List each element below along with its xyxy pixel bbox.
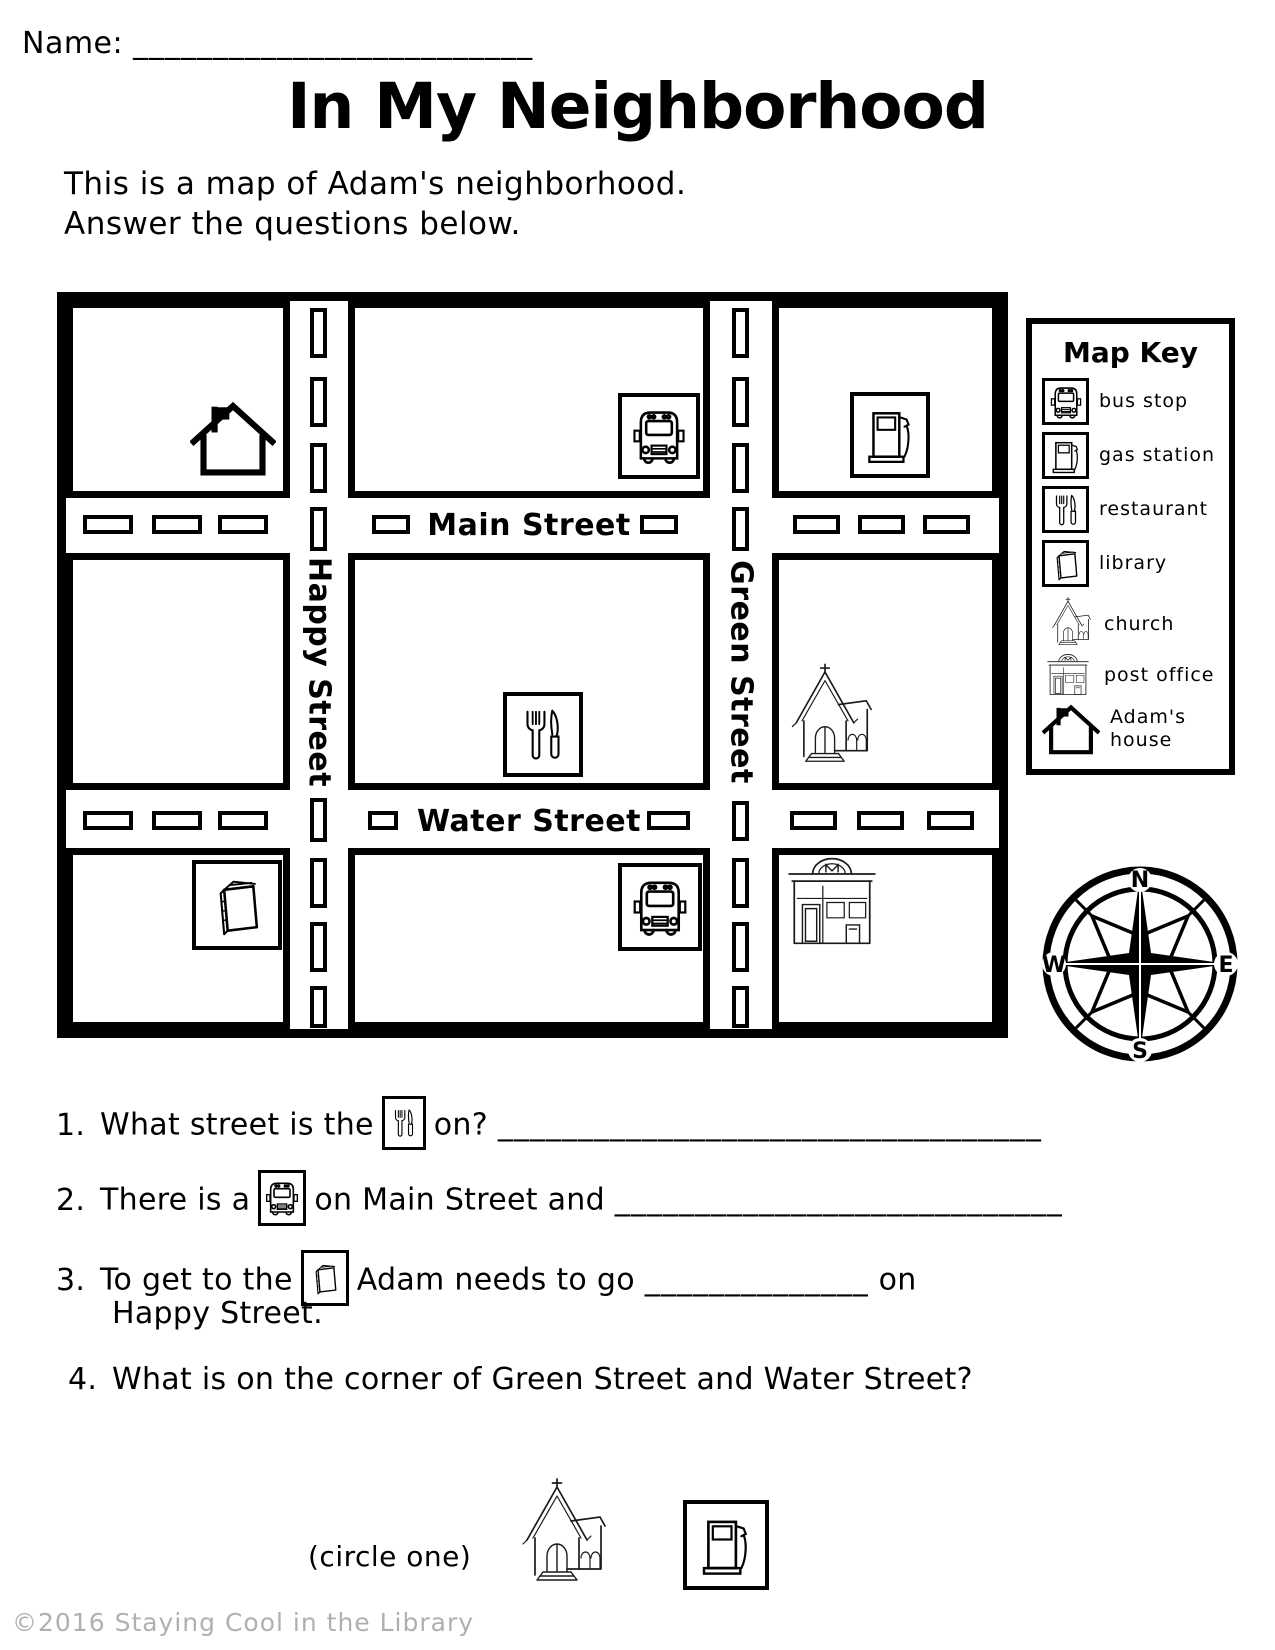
church-icon xyxy=(1042,596,1094,652)
road-dash xyxy=(732,922,749,972)
road-dash xyxy=(218,811,268,830)
water-street-label: Water Street xyxy=(348,804,710,839)
road-dash xyxy=(790,811,837,830)
page-title: In My Neighborhood xyxy=(0,70,1275,143)
map-key: Map Key bus stop gas station restaurant … xyxy=(1026,318,1235,775)
road-dash xyxy=(923,515,970,534)
instructions-line1: This is a map of Adam's neighborhood. xyxy=(64,164,686,204)
key-item-adams-house: Adam's house xyxy=(1042,700,1200,758)
key-item-restaurant: restaurant xyxy=(1042,486,1208,533)
road-dash xyxy=(732,507,749,551)
question-4: 4.What is on the corner of Green Street … xyxy=(68,1362,973,1397)
road-dash xyxy=(152,811,202,830)
road-dash xyxy=(152,515,202,534)
question-number: 4. xyxy=(68,1362,112,1397)
question-text: on Main Street and xyxy=(314,1183,605,1218)
question-1: 1.What street is the on? _______________… xyxy=(56,1096,1042,1156)
bus-icon xyxy=(1042,378,1089,425)
answer-blank[interactable]: __________________________________ xyxy=(498,1108,1042,1143)
map-key-title: Map Key xyxy=(1032,336,1229,369)
happy-street-label: Happy Street xyxy=(302,557,337,787)
key-item-bus-stop: bus stop xyxy=(1042,378,1188,425)
road-dash xyxy=(83,515,133,534)
neighborhood-map: Main Street Water Street Happy Street Gr… xyxy=(57,292,1008,1038)
gas-station-icon xyxy=(850,392,930,478)
road-dash xyxy=(857,811,904,830)
restaurant-icon xyxy=(382,1096,426,1150)
key-label: post office xyxy=(1104,664,1215,687)
road-dash xyxy=(310,858,327,908)
road-dash xyxy=(310,798,327,842)
road-dash xyxy=(732,377,749,427)
post-office-icon xyxy=(781,853,883,951)
road-dash xyxy=(310,507,327,551)
question-number: 2. xyxy=(56,1183,100,1218)
question-text: What street is the xyxy=(100,1108,374,1143)
compass-rose-icon: N E S W xyxy=(1038,862,1242,1066)
road-dash xyxy=(310,443,327,493)
compass-n: N xyxy=(1131,868,1149,893)
key-label: library xyxy=(1099,552,1167,575)
gas-station-icon xyxy=(1042,432,1089,479)
block-middle-left xyxy=(66,553,290,790)
road-dash xyxy=(310,922,327,972)
question-text: What is on the corner of Green Street an… xyxy=(112,1362,973,1397)
copyright: ©2016 Staying Cool in the Library xyxy=(12,1608,474,1637)
bus-icon xyxy=(258,1170,306,1226)
key-label: bus stop xyxy=(1099,390,1188,413)
answer-blank[interactable]: ______________ xyxy=(645,1263,869,1298)
gas-station-icon[interactable] xyxy=(683,1500,769,1590)
road-dash xyxy=(732,801,749,841)
road-dash xyxy=(927,811,974,830)
road-dash xyxy=(732,858,749,908)
bus-icon xyxy=(618,863,702,951)
compass-e: E xyxy=(1218,953,1233,978)
name-label: Name: xyxy=(22,26,123,61)
name-blank[interactable]: _________________________ xyxy=(133,26,533,61)
church-icon xyxy=(777,653,873,785)
key-label: gas station xyxy=(1099,444,1215,467)
road-dash xyxy=(732,443,749,493)
road-dash xyxy=(310,986,327,1028)
bus-icon xyxy=(618,393,700,479)
key-item-library: library xyxy=(1042,540,1167,587)
key-item-gas-station: gas station xyxy=(1042,432,1215,479)
instructions-line2: Answer the questions below. xyxy=(64,204,686,244)
church-icon[interactable] xyxy=(505,1476,609,1596)
question-2: 2.There is a on Main Street and ________… xyxy=(56,1170,1063,1232)
restaurant-icon xyxy=(503,692,583,777)
question-number: 1. xyxy=(56,1108,100,1143)
question-text: on xyxy=(879,1263,917,1298)
key-label: restaurant xyxy=(1099,498,1208,521)
road-dash xyxy=(793,515,840,534)
library-icon xyxy=(1042,540,1089,587)
post-office-icon xyxy=(1042,652,1094,698)
road-dash xyxy=(732,308,749,358)
green-street-label: Green Street xyxy=(724,560,759,784)
question-text: on? xyxy=(434,1108,488,1143)
road-dash xyxy=(732,986,749,1028)
main-street-label: Main Street xyxy=(348,508,710,543)
answer-blank[interactable]: ____________________________ xyxy=(615,1183,1063,1218)
library-icon xyxy=(192,860,282,950)
compass-w: W xyxy=(1042,953,1066,978)
road-dash xyxy=(310,377,327,427)
restaurant-icon xyxy=(1042,486,1089,533)
key-label: Adam's house xyxy=(1110,706,1200,752)
instructions: This is a map of Adam's neighborhood. An… xyxy=(64,164,686,244)
key-item-post-office: post office xyxy=(1042,652,1215,698)
question-text: Adam needs to go xyxy=(357,1263,635,1298)
question-number: 3. xyxy=(56,1263,100,1298)
compass-s: S xyxy=(1132,1039,1148,1064)
question-text: To get to the xyxy=(100,1263,293,1298)
road-dash xyxy=(310,308,327,358)
house-icon xyxy=(1042,700,1100,758)
road-dash xyxy=(218,515,268,534)
road-dash xyxy=(858,515,905,534)
circle-one-label: (circle one) xyxy=(308,1540,471,1573)
key-item-church: church xyxy=(1042,596,1174,652)
name-line: Name: _________________________ xyxy=(22,26,533,61)
road-dash xyxy=(83,811,133,830)
key-label: church xyxy=(1104,613,1174,636)
question-text: There is a xyxy=(100,1183,250,1218)
house-icon xyxy=(190,395,276,481)
question-3-line2: Happy Street. xyxy=(112,1296,323,1331)
